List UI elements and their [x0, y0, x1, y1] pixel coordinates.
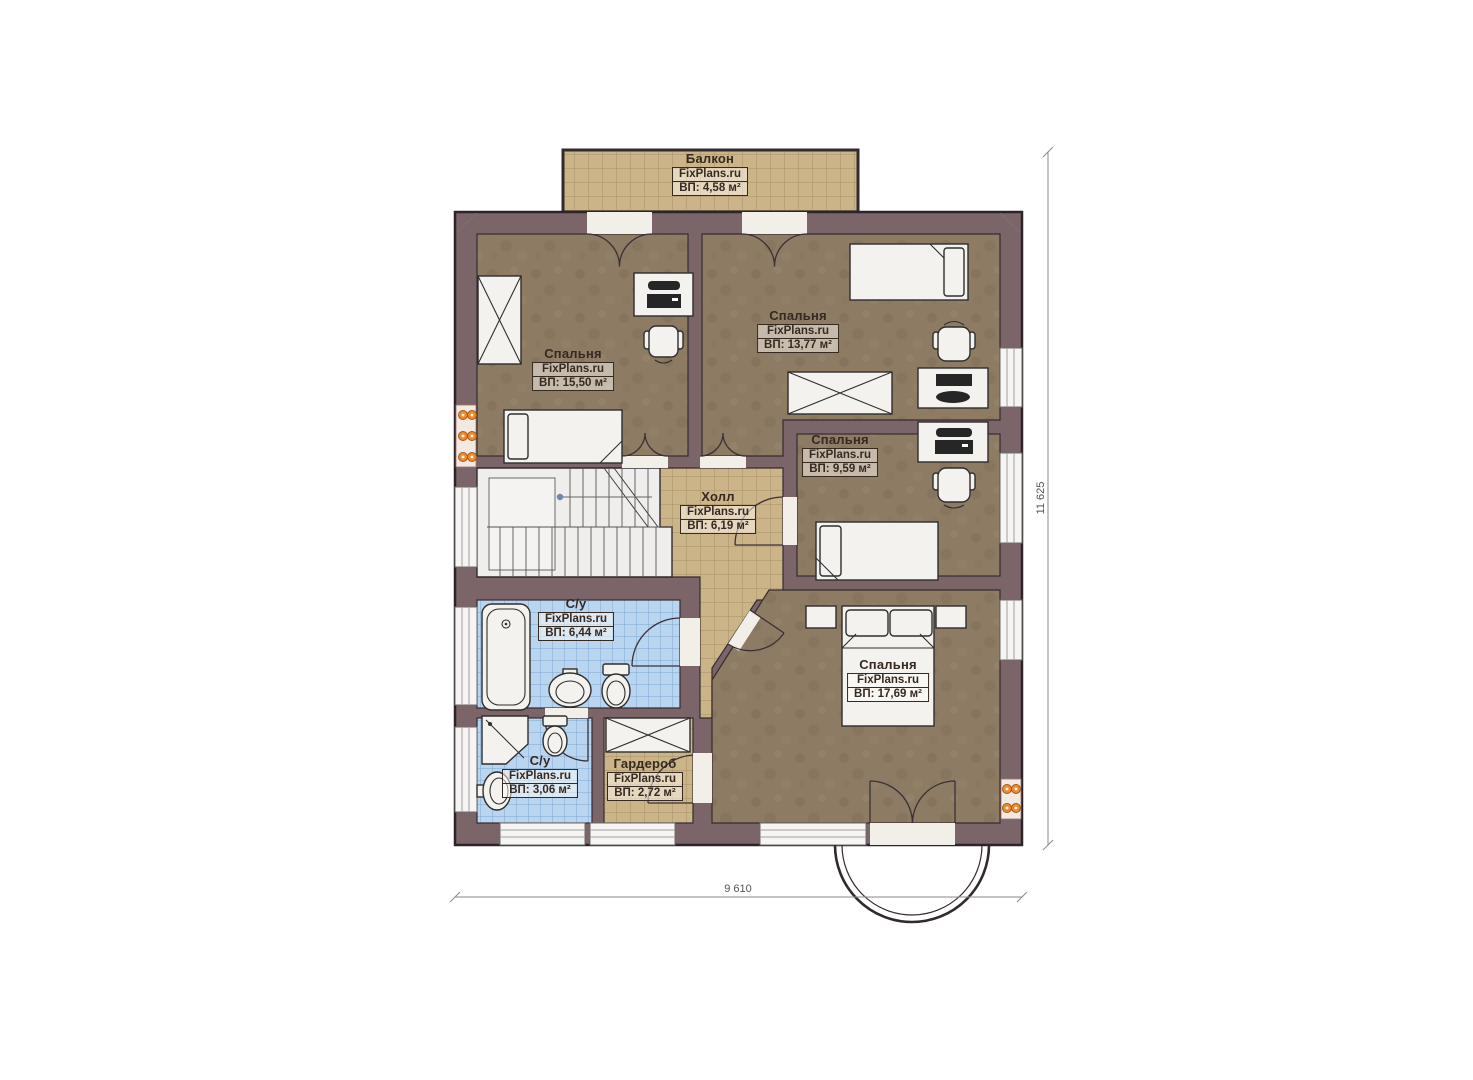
- area-text: ВП: 4,58 м²: [673, 182, 747, 195]
- window-bottom-1: [500, 823, 585, 845]
- bathtub-icon: [482, 604, 530, 710]
- area-text: ВП: 17,69 м²: [848, 688, 928, 701]
- room-label-bedroom-3: Спальня FixPlans.ru ВП: 9,59 м²: [802, 432, 878, 477]
- room-label-balcony: Балкон FixPlans.ru ВП: 4,58 м²: [672, 151, 748, 196]
- wardrobe-icon: [478, 276, 521, 364]
- room-label-box: FixPlans.ru ВП: 6,19 м²: [680, 505, 756, 534]
- brand-text: FixPlans.ru: [673, 168, 747, 182]
- room-label-box: FixPlans.ru ВП: 17,69 м²: [847, 673, 929, 702]
- staircase: [477, 468, 672, 577]
- room-label-box: FixPlans.ru ВП: 3,06 м²: [502, 769, 578, 798]
- nightstand-icon: [806, 606, 836, 628]
- room-title: Спальня: [757, 308, 839, 323]
- room-title: Гардероб: [607, 756, 683, 771]
- toilet-icon: [602, 664, 630, 708]
- dimension-height-label: 11 625: [1035, 482, 1047, 515]
- area-text: ВП: 3,06 м²: [503, 784, 577, 797]
- bed-icon: [816, 522, 938, 580]
- brand-text: FixPlans.ru: [803, 449, 877, 463]
- window-left-3: [455, 727, 477, 812]
- toilet-icon: [543, 716, 567, 756]
- area-text: ВП: 6,44 м²: [539, 627, 613, 640]
- floor-plan-canvas: Балкон FixPlans.ru ВП: 4,58 м² Спальня F…: [0, 0, 1473, 1080]
- room-title: Спальня: [847, 657, 929, 672]
- room-title: Балкон: [672, 151, 748, 166]
- room-label-wardrobe: Гардероб FixPlans.ru ВП: 2,72 м²: [607, 756, 683, 801]
- room-label-box: FixPlans.ru ВП: 9,59 м²: [802, 448, 878, 477]
- brand-text: FixPlans.ru: [533, 363, 613, 377]
- bay-arc: [835, 845, 989, 922]
- room-label-bedroom-1: Спальня FixPlans.ru ВП: 15,50 м²: [532, 346, 614, 391]
- area-text: ВП: 2,72 м²: [608, 787, 682, 800]
- bed-icon: [504, 410, 622, 463]
- room-title: Спальня: [802, 432, 878, 447]
- window-left-1: [455, 487, 477, 567]
- window-bottom-3: [760, 823, 866, 845]
- brand-text: FixPlans.ru: [503, 770, 577, 784]
- wardrobe-icon: [788, 372, 892, 414]
- room-label-bedroom-4: Спальня FixPlans.ru ВП: 17,69 м²: [847, 657, 929, 702]
- room-label-hall: Холл FixPlans.ru ВП: 6,19 м²: [680, 489, 756, 534]
- area-text: ВП: 15,50 м²: [533, 377, 613, 390]
- room-label-box: FixPlans.ru ВП: 4,58 м²: [672, 167, 748, 196]
- window-right-2: [1000, 453, 1022, 543]
- outlet-block-left: [456, 405, 477, 467]
- brand-text: FixPlans.ru: [681, 506, 755, 520]
- desk-icon: [634, 273, 693, 316]
- brand-text: FixPlans.ru: [539, 613, 613, 627]
- window-right-1: [1000, 348, 1022, 407]
- room-label-box: FixPlans.ru ВП: 13,77 м²: [757, 324, 839, 353]
- brand-text: FixPlans.ru: [758, 325, 838, 339]
- nightstand-icon: [936, 606, 966, 628]
- room-title: Холл: [680, 489, 756, 504]
- wardrobe-icon: [606, 718, 690, 752]
- room-title: Спальня: [532, 346, 614, 361]
- outlet-block-right: [1001, 779, 1021, 819]
- room-title: С/у: [502, 753, 578, 768]
- room-label-box: FixPlans.ru ВП: 2,72 м²: [607, 772, 683, 801]
- window-right-3: [1000, 600, 1022, 660]
- area-text: ВП: 9,59 м²: [803, 463, 877, 476]
- room-label-box: FixPlans.ru ВП: 15,50 м²: [532, 362, 614, 391]
- room-label-box: FixPlans.ru ВП: 6,44 м²: [538, 612, 614, 641]
- room-label-bathroom-1: С/у FixPlans.ru ВП: 6,44 м²: [538, 596, 614, 641]
- brand-text: FixPlans.ru: [608, 773, 682, 787]
- bed-icon: [850, 244, 968, 300]
- desk-icon: [918, 422, 988, 462]
- stair-start-dot: [557, 494, 563, 500]
- room-label-bathroom-2: С/у FixPlans.ru ВП: 3,06 м²: [502, 753, 578, 798]
- desk-icon: [918, 368, 988, 408]
- wardrobe-furniture: [606, 718, 690, 752]
- room-label-bedroom-2: Спальня FixPlans.ru ВП: 13,77 м²: [757, 308, 839, 353]
- room-title: С/у: [538, 596, 614, 611]
- area-text: ВП: 6,19 м²: [681, 520, 755, 533]
- window-bottom-2: [590, 823, 675, 845]
- window-left-2: [455, 607, 477, 705]
- brand-text: FixPlans.ru: [848, 674, 928, 688]
- dimension-width-label: 9 610: [724, 883, 752, 895]
- area-text: ВП: 13,77 м²: [758, 339, 838, 352]
